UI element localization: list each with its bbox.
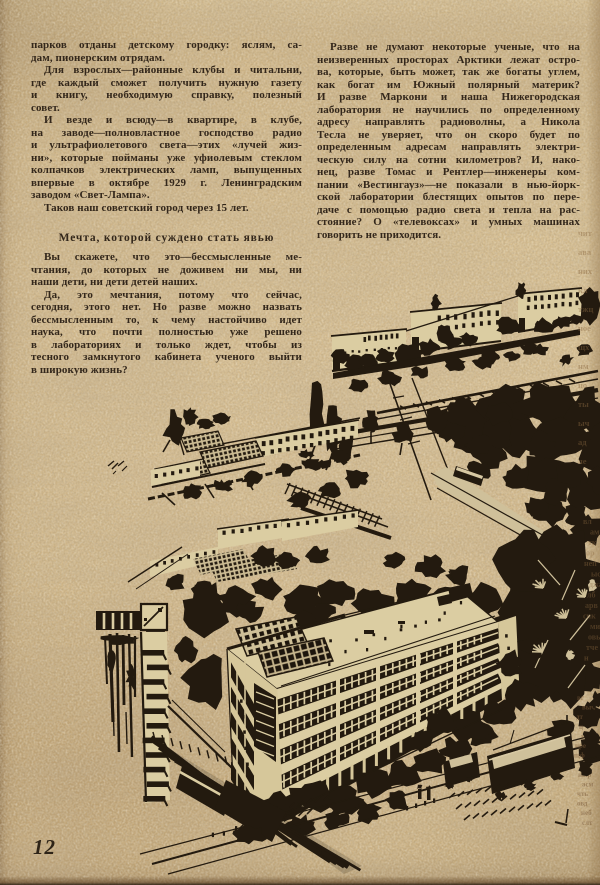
svg-text:ц: ц — [579, 723, 583, 731]
svg-text:щх: щх — [578, 342, 590, 352]
svg-text:ле: ле — [578, 456, 587, 466]
svg-text:ами: ами — [590, 528, 600, 537]
svg-text:арв: арв — [585, 601, 598, 610]
svg-text:кл: кл — [578, 285, 588, 295]
svg-text:нре: нре — [575, 742, 586, 750]
svg-text:дт: дт — [576, 713, 584, 721]
svg-text:них: них — [578, 266, 593, 276]
svg-text:нм: нм — [578, 361, 589, 371]
svg-text:ыс: ыс — [591, 570, 600, 579]
svg-text:асм: асм — [582, 780, 594, 788]
svg-text:по: по — [578, 380, 587, 390]
svg-text:снк: снк — [583, 612, 596, 621]
svg-text:чть: чть — [577, 790, 588, 798]
svg-text:джа: джа — [589, 580, 600, 589]
svg-text:ты: ты — [578, 399, 589, 409]
svg-text:неп: неп — [584, 559, 597, 568]
svg-text:слт: слт — [582, 819, 593, 827]
svg-text:неб: неб — [581, 809, 592, 817]
svg-text:ад: ад — [578, 437, 587, 447]
svg-text:ава: ава — [578, 247, 592, 257]
svg-text:щф: щф — [574, 752, 585, 760]
svg-text:ное: ное — [578, 323, 591, 333]
svg-text:овь: овь — [588, 633, 600, 642]
svg-text:тжц: тжц — [578, 304, 593, 314]
svg-text:вл: вл — [583, 517, 592, 526]
svg-text:вг: вг — [577, 694, 584, 702]
svg-text:тк: тк — [588, 538, 597, 547]
svg-text:лб: лб — [587, 591, 596, 600]
svg-text:овд: овд — [577, 800, 588, 808]
svg-text:ыч: ыч — [578, 418, 590, 428]
svg-text:н: н — [584, 654, 589, 663]
svg-text:ор: ор — [586, 549, 595, 558]
svg-text:тче: тче — [586, 643, 598, 652]
svg-text:ми: ми — [590, 622, 600, 631]
svg-text:чит: чит — [578, 228, 593, 238]
